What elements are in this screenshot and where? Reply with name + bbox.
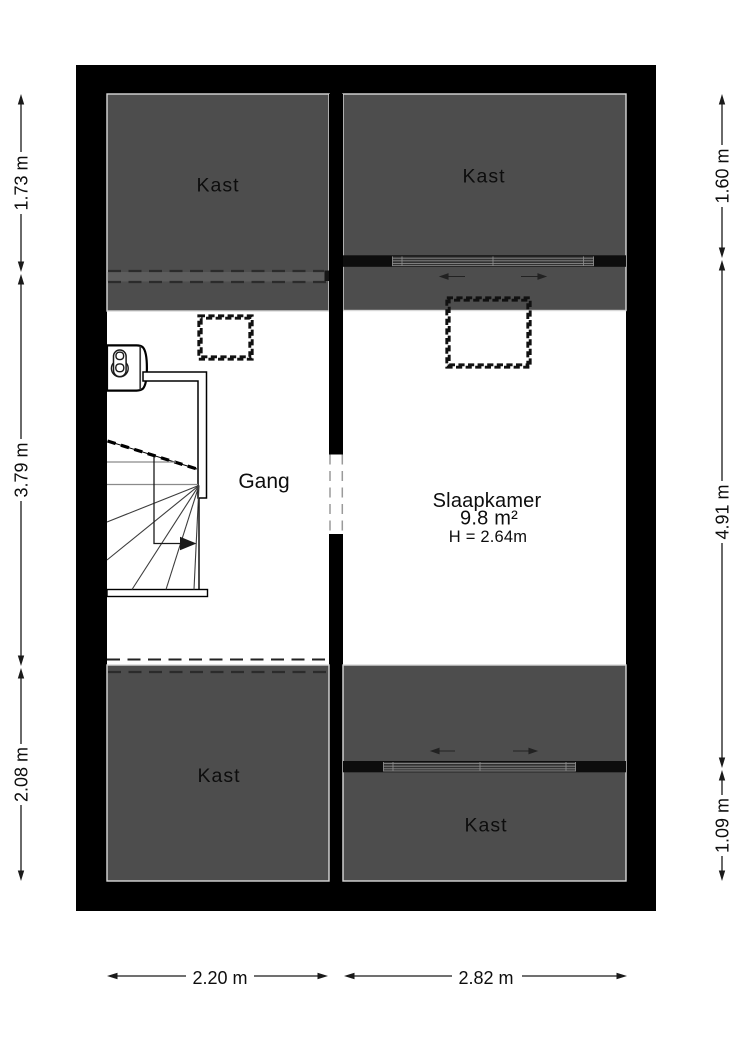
svg-text:1.73 m: 1.73 m — [11, 155, 31, 210]
svg-text:3.79 m: 3.79 m — [11, 442, 31, 497]
svg-text:2.08 m: 2.08 m — [11, 747, 31, 802]
svg-text:4.91 m: 4.91 m — [712, 484, 732, 539]
svg-text:2.20 m: 2.20 m — [192, 968, 247, 988]
svg-text:1.60 m: 1.60 m — [712, 148, 732, 203]
svg-text:Gang: Gang — [238, 470, 289, 493]
svg-text:1.09 m: 1.09 m — [712, 798, 732, 853]
svg-text:Kast: Kast — [464, 815, 507, 837]
svg-text:H = 2.64m: H = 2.64m — [449, 528, 527, 546]
svg-text:Kast: Kast — [462, 166, 505, 188]
svg-text:9.8 m²: 9.8 m² — [460, 508, 518, 530]
svg-text:Kast: Kast — [197, 765, 240, 787]
svg-text:2.82 m: 2.82 m — [458, 968, 513, 988]
svg-text:Kast: Kast — [196, 175, 239, 197]
